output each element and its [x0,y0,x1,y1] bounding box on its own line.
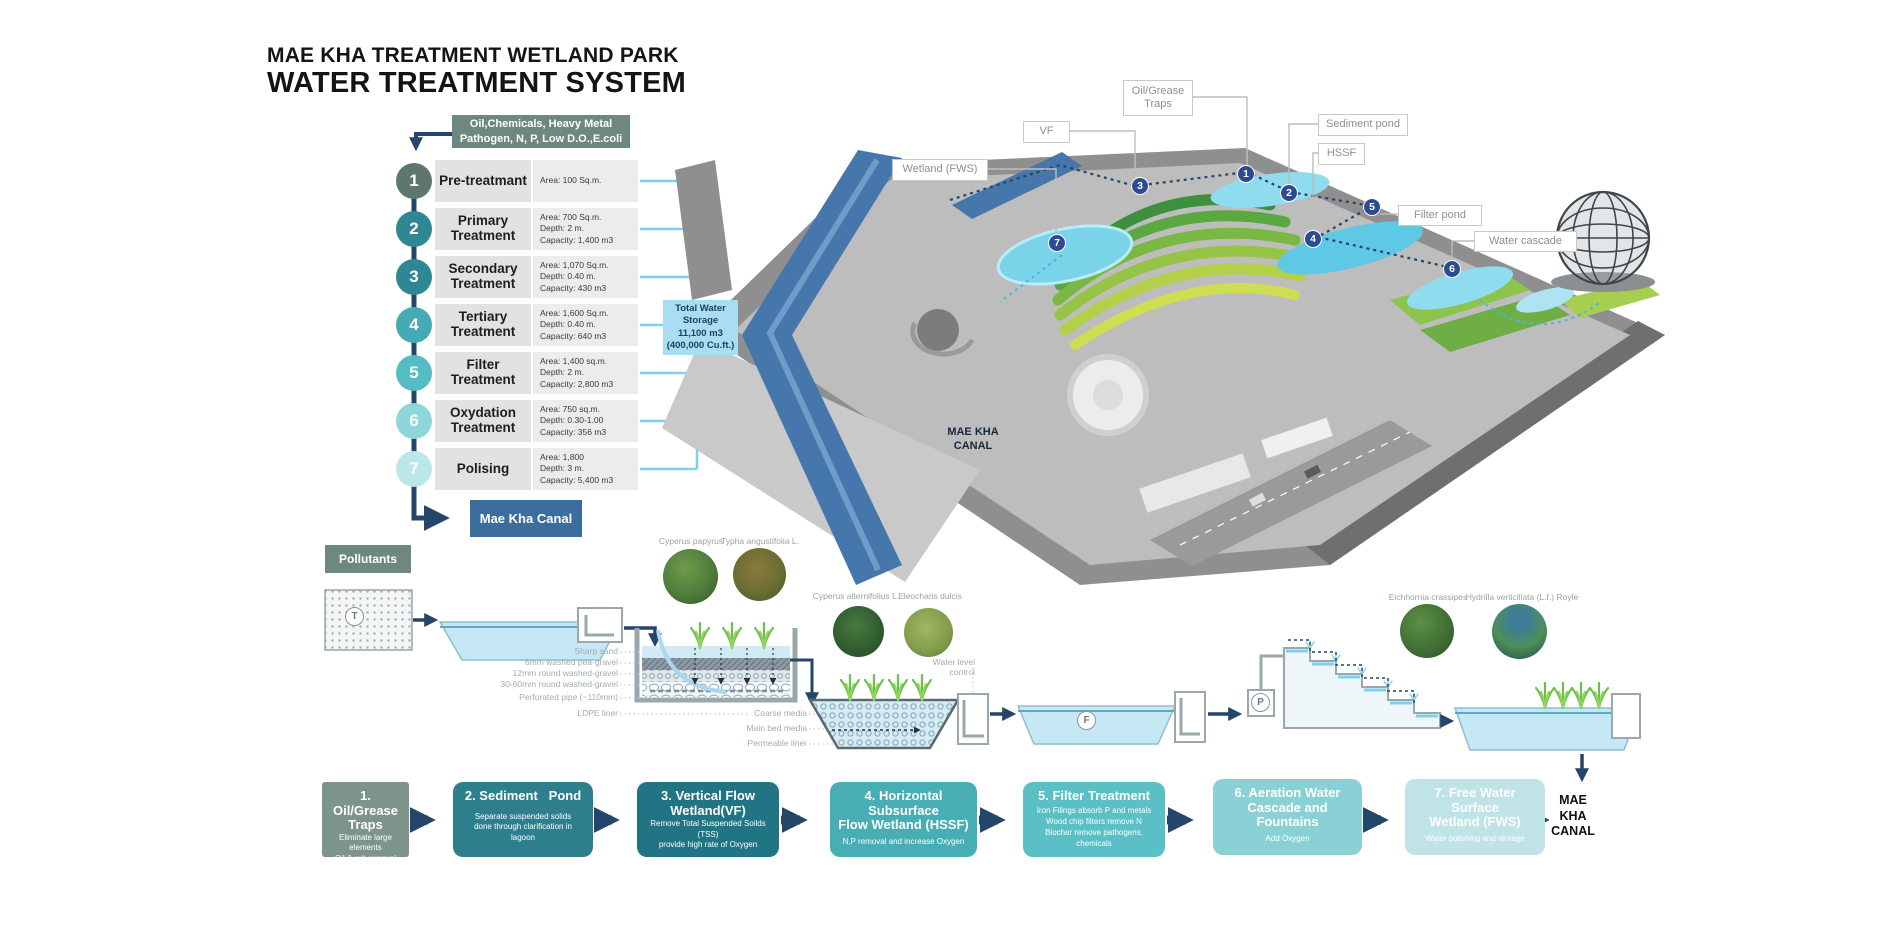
plant-label-eleocharis: Eleocharis dulcis [884,591,976,601]
process-box-body: Eliminate large elements Oil & grit remo… [328,833,403,876]
plant-photo-hydrilla [1492,604,1547,659]
process-box-title: 3. Vertical Flow Wetland(VF) [643,789,773,818]
vf-layer-3060mm-gravel: 30-60mm round washed-gravel [471,680,618,690]
step-detail-area: Area: 1,600 Sq.m. [540,308,638,319]
map-marker-6: 6 [1443,260,1461,278]
step-number-4: 4 [396,307,432,343]
step-detail-capacity: Capacity: 430 m3 [540,283,638,294]
pollutants-label: Pollutants [325,545,411,573]
step-detail-depth: Depth: 3 m. [540,463,638,474]
end-canal-label: MAE KHA CANAL [1550,793,1596,840]
step-number-7: 7 [396,451,432,487]
process-box-body: N,P removal and increase Oxygen [836,837,971,848]
marker-f: F [1077,711,1096,730]
process-box-3: 3. Vertical Flow Wetland(VF) Remove Tota… [637,782,779,857]
step-detail-area: Area: 700 Sq.m. [540,212,638,223]
step-detail-area: Area: 100 Sq.m. [540,175,638,186]
step-number-5: 5 [396,355,432,391]
step-detail-capacity: Capacity: 1,400 m3 [540,235,638,246]
step-details-4: Area: 1,600 Sq.m.Depth: 0.40 m.Capacity:… [533,304,638,346]
total-water-storage-box: Total Water Storage 11,100 m3 (400,000 C… [663,300,738,355]
process-box-body: Add Oxygen [1219,834,1356,845]
vf-layer-perforated-pipe: Perforated pipe (~110mm) [493,693,618,703]
callout-hssf: HSSF [1318,143,1365,165]
step-detail-depth: Depth: 0.40 m. [540,319,638,330]
vf-layer-pea-gravel: 6mm washed pea-gravel [493,658,618,668]
map-canal-label: MAE KHA CANAL [928,423,1018,457]
page-title: MAE KHA TREATMENT WETLAND PARK WATER TRE… [267,44,686,100]
step-name-1: Pre-treatmant [435,160,531,202]
callout-wetland-fws: Wetland (FWS) [892,159,988,181]
process-box-body: Remove Total Suspended Soilds (TSS) prov… [643,819,773,851]
step-details-2: Area: 700 Sq.m.Depth: 2 m.Capacity: 1,40… [533,208,638,250]
process-box-body: Separate suspended solids done through c… [459,812,587,844]
step-details-7: Area: 1,800Depth: 3 m.Capacity: 5,400 m3 [533,448,638,490]
step-detail-depth: Depth: 0.30-1.00 [540,415,638,426]
plant-photo-cyperus-papyrus [663,549,718,604]
map-marker-5: 5 [1363,198,1381,216]
process-box-title: 2. Sediment Pond [459,789,587,804]
step-name-5: Filter Treatment [435,352,531,394]
step-detail-depth: Depth: 2 m. [540,367,638,378]
callout-vf: VF [1023,121,1070,143]
vf-layer-12mm-gravel: 12mm round washed-gravel [478,669,618,679]
step-number-6: 6 [396,403,432,439]
step-detail-area: Area: 1,800 [540,452,638,463]
map-illustration [662,97,1665,585]
step-name-2: Primary Treatment [435,208,531,250]
step-details-3: Area: 1,070 Sq.m.Depth: 0.40 m.Capacity:… [533,256,638,298]
process-box-title: 5. Filter Treatment [1029,789,1159,804]
step-detail-depth: Depth: 2 m. [540,223,638,234]
plant-photo-cyperus-alternifolius [833,606,884,657]
step-details-1: Area: 100 Sq.m. [533,160,638,202]
infographic-canvas: MAE KHA TREATMENT WETLAND PARK WATER TRE… [0,0,1900,927]
step-detail-depth: Depth: 0.40 m. [540,271,638,282]
process-box-title: 7. Free Water Surface Wetland (FWS) [1411,786,1539,830]
step-name-3: Secondary Treatment [435,256,531,298]
process-box-title: 6. Aeration Water Cascade and Fountains [1219,786,1356,830]
step-name-4: Tertiary Treatment [435,304,531,346]
callout-filter-pond: Filter pond [1398,205,1482,226]
step-details-5: Area: 1,400 sq.m.Depth: 2 m.Capacity: 2,… [533,352,638,394]
hssf-coarse-media: Coarse media [737,709,807,719]
hssf-main-bed-media: Main bed media [730,724,807,734]
step-detail-area: Area: 1,400 sq.m. [540,356,638,367]
step-detail-capacity: Capacity: 5,400 m3 [540,475,638,486]
step-number-3: 3 [396,259,432,295]
step-detail-capacity: Capacity: 640 m3 [540,331,638,342]
callout-sediment-pond: Sediment pond [1318,114,1408,136]
step-name-6: Oxydation Treatment [435,400,531,442]
process-box-6: 6. Aeration Water Cascade and Fountains … [1213,779,1362,855]
callout-oil-grease-traps: Oil/Grease Traps [1123,80,1193,116]
process-box-title: 4. Horizontal Subsurface Flow Wetland (H… [836,789,971,833]
vf-layer-sharp-sand: Sharp sand [518,647,618,657]
map-marker-4: 4 [1304,230,1322,248]
process-box-7: 7. Free Water Surface Wetland (FWS) Wate… [1405,779,1545,855]
plant-photo-eleocharis [904,608,953,657]
step-detail-capacity: Capacity: 356 m3 [540,427,638,438]
step-number-1: 1 [396,163,432,199]
process-box-1: 1. Oil/Grease Traps Eliminate large elem… [322,782,409,857]
process-box-body: Iron Filings absorb P and metals Wood ch… [1029,806,1159,849]
step-number-2: 2 [396,211,432,247]
map-marker-7: 7 [1048,234,1066,252]
map-marker-3: 3 [1131,177,1149,195]
hssf-permeable-liner: Permeable liner [727,739,807,749]
process-box-4: 4. Horizontal Subsurface Flow Wetland (H… [830,782,977,857]
marker-p: P [1251,693,1270,712]
map-marker-2: 2 [1280,184,1298,202]
step-detail-area: Area: 1,070 Sq.m. [540,260,638,271]
process-box-5: 5. Filter Treatment Iron Filings absorb … [1023,782,1165,857]
marker-t: T [345,607,364,626]
mae-kha-canal-box: Mae Kha Canal [470,500,582,537]
process-box-2: 2. Sediment Pond Separate suspended soli… [453,782,593,857]
process-box-body: Water polishing and storage [1411,834,1539,845]
step-details-6: Area: 750 sq.m.Depth: 0.30-1.00Capacity:… [533,400,638,442]
step-detail-capacity: Capacity: 2,800 m3 [540,379,638,390]
title-line2: WATER TREATMENT SYSTEM [267,67,686,100]
plant-label-hydrilla: Hydrilla verticillata (L.f.) Royle [1456,592,1588,602]
step-detail-area: Area: 750 sq.m. [540,404,638,415]
title-line1: MAE KHA TREATMENT WETLAND PARK [267,44,686,68]
hssf-water-level-control: Water level control [917,658,975,678]
map-marker-1: 1 [1237,165,1255,183]
pollutant-input-box: Oil,Chemicals, Heavy Metal Pathogen, N, … [452,115,630,148]
step-name-7: Polising [435,448,531,490]
process-box-title: 1. Oil/Grease Traps [328,789,403,833]
vf-layer-ldpe-liner: LDPE liner [518,709,618,719]
callout-water-cascade: Water cascade [1474,231,1577,252]
plant-label-typha: Typha angustifolia L. [712,536,808,546]
plant-photo-eichhornia [1400,604,1454,658]
plant-photo-typha [733,548,786,601]
